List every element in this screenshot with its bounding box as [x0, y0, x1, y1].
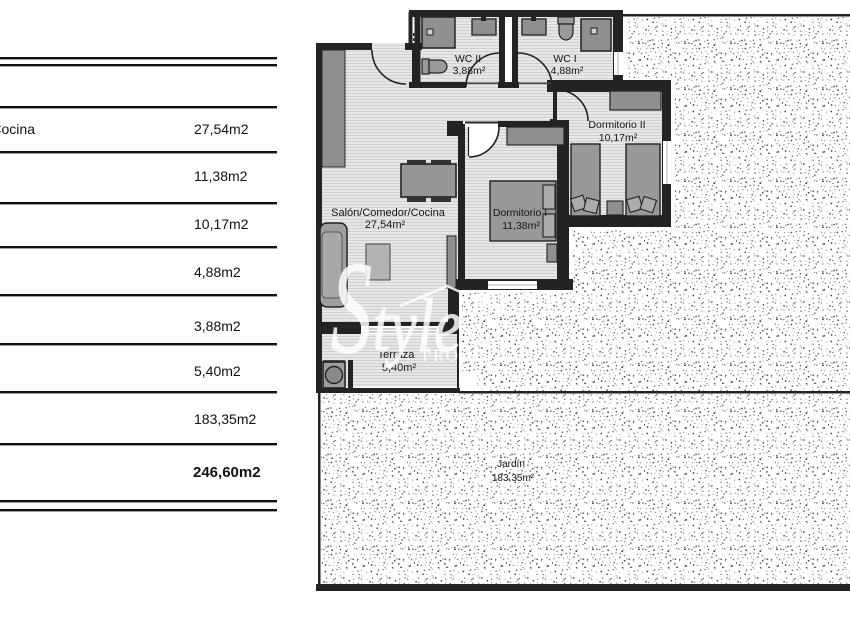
svg-text:Dormitorio II: Dormitorio II [588, 119, 645, 131]
svg-text:183,35m²: 183,35m² [492, 473, 535, 484]
svg-text:WC I: WC I [553, 53, 576, 65]
svg-text:Jardín: Jardín [497, 459, 525, 470]
svg-text:27,54m2: 27,54m2 [194, 121, 249, 137]
svg-text:246,60m2: 246,60m2 [193, 464, 261, 481]
svg-text:Dormitorio I: Dormitorio I [493, 207, 547, 219]
svg-text:10,17m2: 10,17m2 [194, 216, 249, 232]
svg-text:3,88m²: 3,88m² [453, 65, 486, 77]
svg-text:3,88m2: 3,88m2 [194, 318, 241, 334]
svg-text:Salón/Comedor/Cocina: Salón/Comedor/Cocina [331, 207, 446, 219]
svg-text:4,88m2: 4,88m2 [194, 264, 241, 280]
svg-text:WC II: WC II [455, 53, 481, 65]
svg-text:Salón/Comedor/Cocina: Salón/Comedor/Cocina [0, 121, 35, 137]
svg-text:10,17m²: 10,17m² [599, 132, 638, 144]
svg-text:183,35m2: 183,35m2 [194, 411, 256, 427]
svg-text:PRO: PRO [422, 346, 460, 365]
svg-text:5,40m2: 5,40m2 [194, 363, 241, 379]
svg-text:11,38m2: 11,38m2 [194, 168, 248, 184]
svg-text:27,54m²: 27,54m² [365, 219, 406, 231]
svg-text:4,88m²: 4,88m² [551, 65, 584, 77]
svg-text:11,38m²: 11,38m² [502, 220, 540, 232]
svg-text:S: S [331, 234, 372, 381]
